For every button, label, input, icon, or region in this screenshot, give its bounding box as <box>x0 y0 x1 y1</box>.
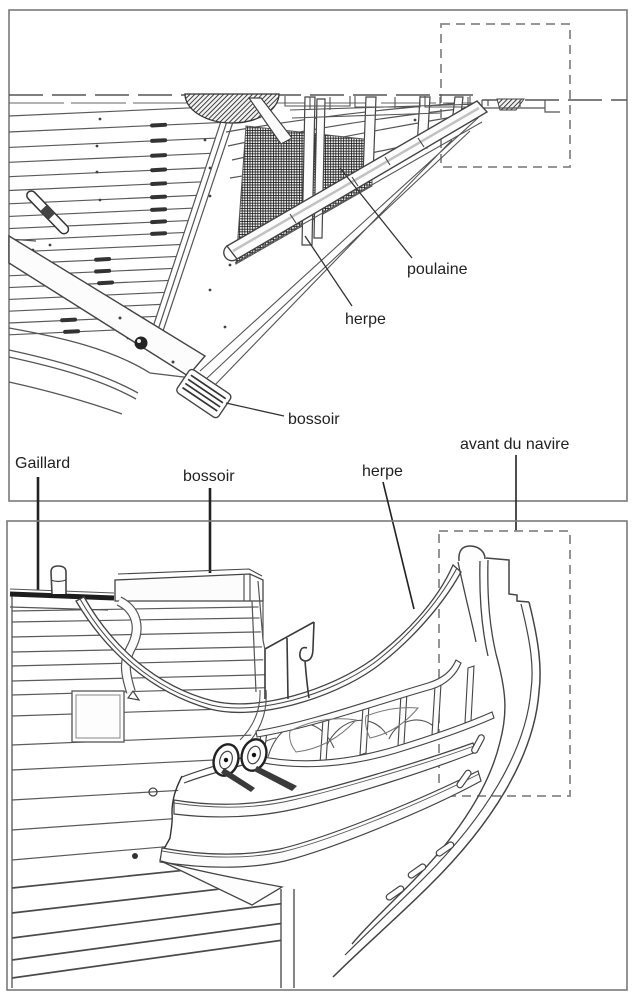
svg-text:herpe: herpe <box>362 463 403 480</box>
svg-text:bossoir: bossoir <box>288 411 340 428</box>
svg-text:bossoir: bossoir <box>183 468 235 485</box>
svg-text:avant du navire: avant du navire <box>460 436 570 453</box>
svg-text:Gaillard: Gaillard <box>15 455 70 472</box>
svg-text:herpe: herpe <box>345 311 386 328</box>
svg-text:poulaine: poulaine <box>407 261 468 278</box>
